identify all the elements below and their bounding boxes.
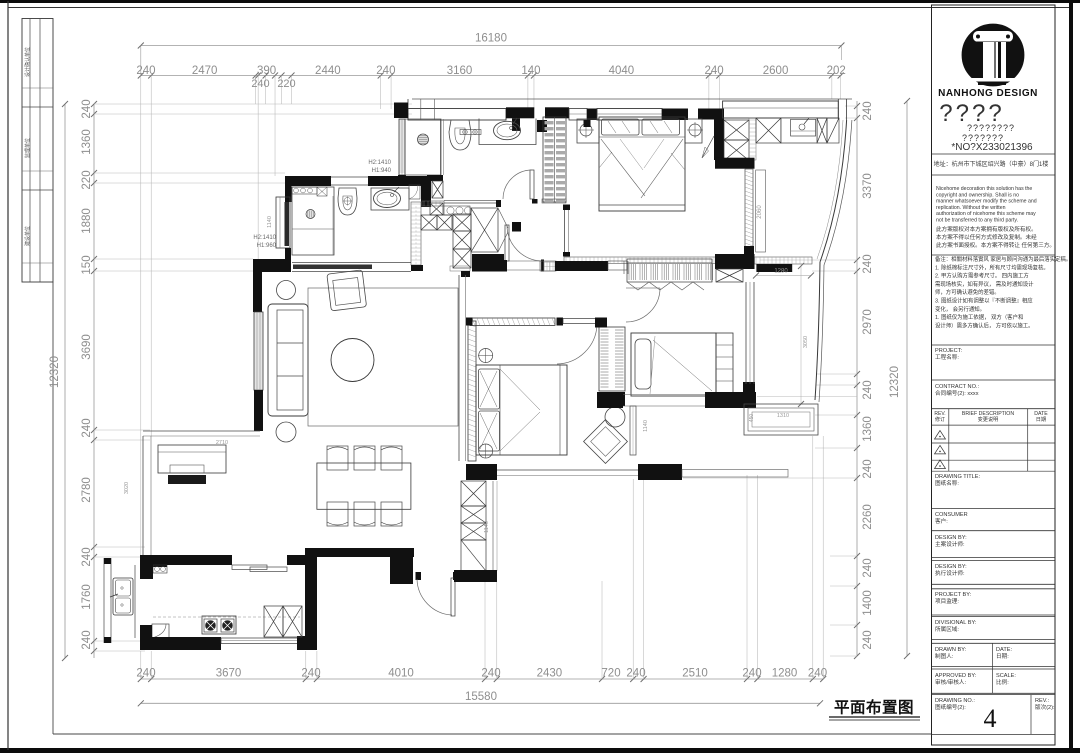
svg-text:1760: 1760	[81, 584, 93, 610]
svg-text:3670: 3670	[216, 668, 242, 680]
svg-text:*NO?X233021396: *NO?X233021396	[951, 142, 1033, 153]
svg-text:APPROVED BY:: APPROVED BY:	[935, 673, 977, 679]
svg-text:修订: 修订	[935, 416, 945, 423]
svg-text:140: 140	[521, 65, 540, 77]
svg-text:制图人:: 制图人:	[935, 652, 954, 660]
svg-text:2440: 2440	[315, 65, 341, 77]
svg-text:4010: 4010	[388, 668, 414, 680]
svg-text:此方案版权对本方案拥有版权及所有权。: 此方案版权对本方案拥有版权及所有权。	[936, 225, 1037, 233]
svg-text:202: 202	[827, 65, 846, 77]
svg-text:2060: 2060	[757, 205, 763, 219]
svg-text:2970: 2970	[862, 309, 874, 335]
svg-text:地址：杭州市下城区绍兴路（中豪）8门1楼: 地址：杭州市下城区绍兴路（中豪）8门1楼	[934, 160, 1049, 168]
svg-text:240: 240	[481, 668, 500, 680]
svg-text:2510: 2510	[682, 668, 708, 680]
svg-text:16180: 16180	[475, 33, 507, 45]
svg-text:3. 图纸设计如有调整以『不断调整』相应: 3. 图纸设计如有调整以『不断调整』相应	[935, 297, 1033, 305]
svg-text:H2:1410: H2:1410	[253, 235, 276, 241]
svg-text:平面布置图: 平面布置图	[834, 698, 914, 717]
svg-text:1280: 1280	[772, 668, 798, 680]
svg-text:2600: 2600	[763, 65, 789, 77]
svg-text:12320: 12320	[49, 356, 61, 388]
svg-text:not be transferred to any thir: not be transferred to any third party.	[936, 218, 1018, 224]
svg-text:本方案不得以任何方式修改及复制。未经: 本方案不得以任何方式修改及复制。未经	[936, 233, 1037, 241]
svg-text:15580: 15580	[465, 691, 497, 703]
svg-text:所属区域:: 所属区域:	[935, 625, 959, 633]
svg-text:240: 240	[862, 630, 874, 649]
svg-text:PROJECT:: PROJECT:	[935, 348, 962, 354]
svg-text:CONTRACT NO.:: CONTRACT NO.:	[935, 384, 979, 390]
svg-text:240: 240	[81, 418, 93, 437]
svg-text:监理单位: 监理单位	[24, 138, 31, 158]
svg-text:1. 图纸仅为施工依据， 双方（客户和: 1. 图纸仅为施工依据， 双方（客户和	[935, 313, 1023, 321]
svg-text:NANHONG DESIGN: NANHONG DESIGN	[938, 88, 1038, 99]
svg-text:240: 240	[862, 254, 874, 273]
svg-text:4: 4	[984, 704, 997, 733]
svg-text:执行设计师:: 执行设计师:	[935, 569, 965, 577]
svg-text:240: 240	[251, 78, 269, 90]
svg-text:比例:: 比例:	[996, 678, 1009, 686]
svg-text:authorization of nicehome this: authorization of nicehome this scheme ma…	[936, 211, 1036, 217]
svg-text:1. 除纸棉标注尺寸外，所有尺寸均需现场复核。: 1. 除纸棉标注尺寸外，所有尺寸均需现场复核。	[935, 263, 1049, 271]
svg-text:SCALE:: SCALE:	[996, 673, 1016, 679]
svg-text:1140: 1140	[484, 521, 490, 533]
svg-text:建设单位: 建设单位	[24, 226, 31, 246]
svg-text:工程名称:: 工程名称:	[935, 353, 959, 361]
svg-text:240: 240	[862, 558, 874, 577]
svg-text:220: 220	[81, 170, 93, 189]
svg-text:DRAWING NO.:: DRAWING NO.:	[935, 698, 975, 704]
svg-text:主案设计师:: 主案设计师:	[935, 540, 965, 548]
svg-text:审核/审核人:: 审核/审核人:	[935, 678, 967, 686]
svg-text:版次(2):: 版次(2):	[1035, 703, 1055, 711]
svg-text:720: 720	[601, 668, 620, 680]
svg-text:240: 240	[862, 459, 874, 478]
svg-text:PROJECT BY:: PROJECT BY:	[935, 592, 972, 598]
svg-text:1360: 1360	[81, 129, 93, 155]
svg-text:3160: 3160	[447, 65, 473, 77]
svg-text:变更说明: 变更说明	[978, 415, 999, 423]
svg-text:变化， 会另行通知。: 变化， 会另行通知。	[935, 305, 985, 313]
svg-text:REV.:: REV.:	[1035, 698, 1050, 704]
svg-text:1140: 1140	[267, 216, 273, 228]
svg-text:1310: 1310	[777, 413, 789, 419]
svg-text:项目监理:: 项目监理:	[935, 597, 959, 605]
svg-text:合同编号(2): xxxx: 合同编号(2): xxxx	[935, 389, 979, 397]
svg-text:设计师）需多方确认后， 方可依以施工。: 设计师）需多方确认后， 方可依以施工。	[935, 321, 1034, 329]
svg-text:240: 240	[136, 65, 155, 77]
svg-text:220: 220	[277, 78, 295, 90]
svg-text:1400: 1400	[862, 590, 874, 616]
svg-text:240: 240	[81, 99, 93, 118]
svg-text:240: 240	[862, 101, 874, 120]
svg-text:DRAWN BY:: DRAWN BY:	[935, 647, 967, 653]
svg-text:copyright and ownership. Shal: copyright and ownership. Shall is no	[936, 192, 1019, 198]
svg-text:240: 240	[81, 630, 93, 649]
svg-text:240: 240	[742, 668, 761, 680]
svg-text:2780: 2780	[81, 477, 93, 503]
svg-text:2430: 2430	[537, 668, 563, 680]
svg-text:2260: 2260	[862, 504, 874, 530]
svg-text:240: 240	[626, 668, 645, 680]
svg-text:DIVISIONAL BY:: DIVISIONAL BY:	[935, 620, 977, 626]
svg-text:3050: 3050	[803, 336, 809, 348]
svg-text:1360: 1360	[862, 416, 874, 442]
svg-text:Nicehome decoration this solut: Nicehome decoration this solution has th…	[936, 186, 1032, 192]
svg-text:3370: 3370	[862, 173, 874, 199]
svg-text:图纸名称:: 图纸名称:	[935, 479, 959, 487]
svg-text:DATE:: DATE:	[996, 647, 1013, 653]
svg-text:3020: 3020	[124, 482, 130, 494]
svg-text:240: 240	[808, 668, 827, 680]
svg-text:240: 240	[862, 380, 874, 399]
svg-text:客户:: 客户:	[935, 517, 948, 525]
svg-text:设计确认单位: 设计确认单位	[24, 47, 31, 77]
svg-text:H2:1410: H2:1410	[368, 160, 391, 166]
svg-text:1280: 1280	[774, 269, 788, 275]
svg-text:450: 450	[749, 414, 755, 423]
svg-text:240: 240	[136, 668, 155, 680]
svg-text:240: 240	[81, 547, 93, 566]
svg-text:150: 150	[81, 255, 93, 274]
svg-text:DESIGN BY:: DESIGN BY:	[935, 564, 967, 570]
svg-text:H1:960: H1:960	[257, 243, 277, 249]
svg-text:3690: 3690	[81, 334, 93, 360]
svg-text:240: 240	[376, 65, 395, 77]
svg-text:1880: 1880	[81, 208, 93, 234]
svg-text:CONSUMER: CONSUMER	[935, 512, 968, 518]
svg-text:日期: 日期	[1036, 416, 1046, 423]
svg-text:2. 甲方认购方需参考尺寸。 四内施工方: 2. 甲方认购方需参考尺寸。 四内施工方	[935, 272, 1029, 280]
svg-text:备注：相關材料落實风 家居与顾问沟通为最后落实定稿。: 备注：相關材料落實风 家居与顾问沟通为最后落实定稿。	[935, 255, 1071, 263]
svg-text:manner whatsoever modify the s: manner whatsoever modify the scheme and	[936, 199, 1037, 205]
svg-text:2470: 2470	[192, 65, 218, 77]
svg-text:replication. Without the writt: replication. Without the written	[936, 205, 1006, 211]
svg-text:12320: 12320	[889, 366, 901, 398]
svg-text:图纸编号(2):: 图纸编号(2):	[935, 703, 966, 711]
svg-text:DESIGN BY:: DESIGN BY:	[935, 535, 967, 541]
svg-text:240: 240	[704, 65, 723, 77]
svg-text:????????: ????????	[967, 123, 1015, 133]
svg-text:240: 240	[301, 668, 320, 680]
svg-text:需现场核实，如有异议， 需及时通知设计: 需现场核实，如有异议， 需及时通知设计	[935, 280, 1034, 288]
svg-text:1140: 1140	[643, 420, 649, 432]
svg-text:4040: 4040	[609, 65, 635, 77]
svg-text:DRAWING TITLE:: DRAWING TITLE:	[935, 474, 981, 480]
svg-text:此方案书面授权。本方案不得转让 任何第三方。: 此方案书面授权。本方案不得转让 任何第三方。	[936, 241, 1055, 249]
svg-text:师，方可确认避免的差错。: 师，方可确认避免的差错。	[935, 288, 1000, 296]
svg-text:日期:: 日期:	[996, 653, 1009, 660]
svg-text:H1:940: H1:940	[372, 168, 392, 174]
